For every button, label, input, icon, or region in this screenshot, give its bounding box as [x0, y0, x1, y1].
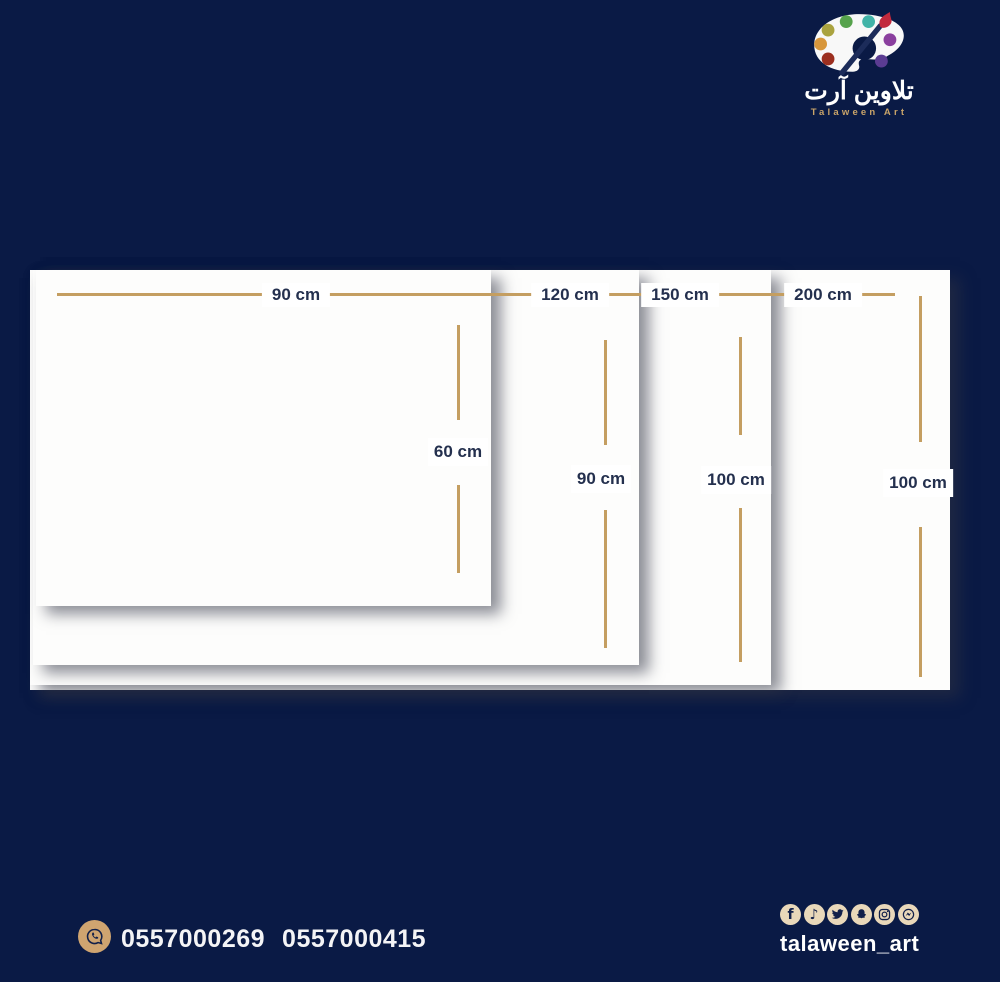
social-icons-row: f ♪ [780, 904, 919, 925]
facebook-icon: f [780, 904, 801, 925]
whatsapp-icon [78, 920, 111, 953]
tiktok-icon: ♪ [804, 904, 825, 925]
poster-canvas-sizes: تلاوين آرت Talaween Art 90 cm 120 cm 150… [0, 0, 1000, 982]
brand-logo: تلاوين آرت Talaween Art [792, 12, 926, 118]
social-handle: talaween_art [780, 931, 918, 957]
phone-number-secondary: 0557000415 [282, 925, 426, 954]
messenger-icon [898, 904, 919, 925]
brand-name-arabic: تلاوين آرت [792, 78, 926, 104]
phone-numbers: 0557000269 0557000415 [121, 925, 426, 954]
instagram-icon [874, 904, 895, 925]
canvas-mockup-90x60 [36, 270, 491, 606]
brand-name-latin: Talaween Art [792, 107, 926, 118]
phone-number-primary: 0557000269 [121, 925, 265, 954]
snapchat-icon [851, 904, 872, 925]
twitter-icon [827, 904, 848, 925]
paint-palette-icon [805, 12, 913, 76]
